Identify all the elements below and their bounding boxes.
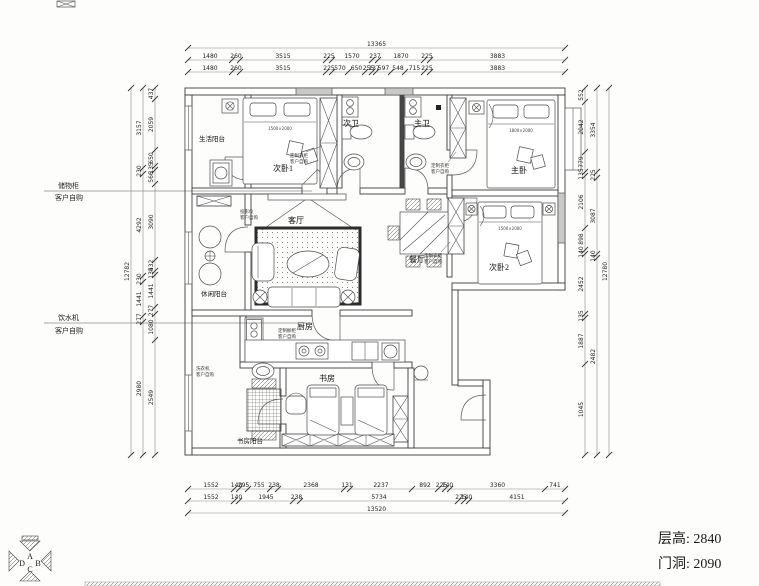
svg-text:230: 230 xyxy=(136,165,143,177)
dim-bottom-overall: 13520 xyxy=(185,506,568,516)
title-bar-edge xyxy=(85,582,660,586)
svg-text:1480: 1480 xyxy=(202,65,217,72)
round-chair-icon xyxy=(199,263,221,285)
svg-text:2237: 2237 xyxy=(373,482,388,489)
svg-text:1870: 1870 xyxy=(393,53,408,60)
svg-text:715: 715 xyxy=(409,65,421,72)
nightstand-icon xyxy=(222,99,238,113)
svg-text:3157: 3157 xyxy=(136,120,143,135)
svg-text:4151: 4151 xyxy=(509,494,524,501)
dim-left-inner: 4372059650135566309043213514412771080254… xyxy=(148,85,158,458)
chair-icon xyxy=(406,199,420,210)
room-label-study-balcony: 书房阳台 xyxy=(237,436,263,445)
dim-top-overall: 13365 xyxy=(185,41,568,51)
bed-icon-bedroom2 xyxy=(478,202,542,284)
svg-text:140: 140 xyxy=(590,250,597,262)
svg-text:1441: 1441 xyxy=(148,283,155,298)
svg-text:洗衣机: 洗衣机 xyxy=(196,365,210,372)
svg-text:客户自购: 客户自购 xyxy=(431,168,449,175)
svg-text:295: 295 xyxy=(238,482,250,489)
sofa-icon xyxy=(268,287,340,307)
door-kitchen xyxy=(312,313,340,341)
svg-text:741: 741 xyxy=(549,482,561,489)
svg-text:140: 140 xyxy=(578,246,585,258)
svg-text:2549: 2549 xyxy=(148,390,155,405)
svg-text:566: 566 xyxy=(148,171,155,183)
svg-text:140: 140 xyxy=(461,494,473,501)
stool-icon xyxy=(414,366,428,380)
round-chair-icon xyxy=(199,226,221,248)
callout-projector: 投影仪 客户自购 xyxy=(240,208,258,221)
table-icon xyxy=(247,389,281,431)
room-label-living: 客厅 xyxy=(288,215,304,225)
svg-text:12782: 12782 xyxy=(124,262,131,281)
callout-washer: 洗衣机 客户自购 xyxy=(196,365,214,378)
svg-text:1552: 1552 xyxy=(203,482,218,489)
nightstand-icon xyxy=(543,203,555,215)
floor-plan-drawing: 生活阳台 次卧1 次卫 主卫 主卧 餐厅 次卧2 客厅 休闲阳台 厨房 书房 书… xyxy=(0,0,759,586)
nightstand-icon xyxy=(469,101,484,114)
bed-size-master: 1800×2000 xyxy=(509,128,533,133)
room-label-bedroom2: 次卧2 xyxy=(489,262,509,272)
door-entry xyxy=(461,395,486,420)
window-top-2 xyxy=(385,88,413,95)
logo-letter-b: B xyxy=(35,559,40,568)
svg-text:225: 225 xyxy=(590,169,597,181)
sink-icon xyxy=(406,154,426,170)
svg-text:570: 570 xyxy=(334,65,346,72)
logo-triangle-top xyxy=(20,541,40,551)
room-label-master-bath: 主卫 xyxy=(414,118,430,128)
svg-text:3354: 3354 xyxy=(590,122,597,137)
dim-top-a: 14802603515225157023718702253883 xyxy=(185,53,568,63)
nightstand-icon xyxy=(466,203,477,215)
dim-left-outer: 3157230429223014412772980 xyxy=(136,85,146,458)
chair-icon xyxy=(427,199,441,210)
bed-size-bedroom2: 1500×2000 xyxy=(498,226,522,231)
room-label-living-balcony: 生活阳台 xyxy=(199,134,225,143)
svg-text:12780: 12780 xyxy=(602,262,609,281)
daybed-icon xyxy=(307,385,339,435)
window-right xyxy=(558,193,565,243)
svg-text:5734: 5734 xyxy=(371,494,386,501)
callout-kitchen-cabinet: 定制橱柜 客户自购 xyxy=(278,327,296,340)
floor-plan-sheet: 生活阳台 次卧1 次卫 主卫 主卧 餐厅 次卧2 客厅 休闲阳台 厨房 书房 书… xyxy=(0,0,759,586)
chair-icon xyxy=(252,379,276,388)
svg-text:135: 135 xyxy=(578,168,585,180)
svg-text:755: 755 xyxy=(253,482,265,489)
wardrobe-icon-masterbath xyxy=(450,98,466,158)
living-room-set xyxy=(252,194,360,307)
dim-right-overall: 12780 xyxy=(602,85,612,458)
svg-text:客户自购: 客户自购 xyxy=(278,333,296,340)
svg-text:3360: 3360 xyxy=(490,482,505,489)
storage-cabinet-icon xyxy=(197,196,231,206)
svg-text:3090: 3090 xyxy=(148,214,155,229)
svg-text:定制衣柜: 定制衣柜 xyxy=(431,162,449,169)
logo-letter-d: D xyxy=(19,559,25,568)
svg-text:1887: 1887 xyxy=(578,333,585,348)
sink-icon xyxy=(344,154,364,170)
svg-text:2980: 2980 xyxy=(136,381,143,396)
door-leisure-balcony xyxy=(225,227,248,252)
svg-text:140: 140 xyxy=(442,482,454,489)
dim-bottom-a: 1552140295755238236813122378922251403360… xyxy=(185,482,568,492)
svg-text:3515: 3515 xyxy=(275,65,290,72)
svg-text:3883: 3883 xyxy=(490,65,505,72)
svg-text:277: 277 xyxy=(148,305,155,317)
svg-text:260: 260 xyxy=(230,65,242,72)
svg-text:2106: 2106 xyxy=(578,194,585,209)
floor-height-note: 层高: 2840 xyxy=(658,530,721,547)
svg-text:135: 135 xyxy=(578,310,585,322)
room-label-master-bedroom: 主卧 xyxy=(511,165,527,175)
bed-size-bedroom1: 1500×2000 xyxy=(268,126,292,131)
svg-text:13520: 13520 xyxy=(367,506,386,513)
svg-text:225: 225 xyxy=(323,53,335,60)
logo-letter-a: A xyxy=(27,552,33,561)
window-seat-icon xyxy=(282,434,394,446)
bookcase-icon-study xyxy=(393,396,408,442)
room-label-leisure-balcony: 休闲阳台 xyxy=(201,289,227,298)
compass-logo: A B C D xyxy=(9,536,51,581)
window-top-1 xyxy=(296,88,332,95)
room-label-kitchen: 厨房 xyxy=(297,321,313,331)
room-label-dining: 餐厅 xyxy=(409,255,425,264)
title-notes: 层高: 2840 门洞: 2090 xyxy=(658,530,721,572)
logo-triangle-right xyxy=(41,551,51,571)
door-opening-note: 门洞: 2090 xyxy=(658,556,721,572)
basin-icon xyxy=(252,363,274,379)
svg-text:13365: 13365 xyxy=(367,41,386,48)
svg-text:779: 779 xyxy=(578,156,585,168)
svg-text:548: 548 xyxy=(392,65,404,72)
svg-text:2042: 2042 xyxy=(578,119,585,134)
svg-text:1045: 1045 xyxy=(578,402,585,417)
callout-water-line2: 客户自购 xyxy=(55,326,83,335)
svg-text:定制衣柜: 定制衣柜 xyxy=(290,152,308,159)
armchair-icon xyxy=(334,247,360,282)
svg-text:238: 238 xyxy=(268,482,280,489)
svg-text:1570: 1570 xyxy=(344,53,359,60)
tv-icon xyxy=(268,194,346,200)
svg-text:892: 892 xyxy=(419,482,431,489)
svg-text:3087: 3087 xyxy=(590,208,597,223)
logo-triangle-left xyxy=(9,551,19,571)
dim-left-overall: 12782 xyxy=(124,85,134,458)
svg-text:1080: 1080 xyxy=(148,319,155,334)
armchair-icon xyxy=(252,243,274,281)
svg-text:客户自购: 客户自购 xyxy=(196,371,214,378)
sheet-cut-mark-top xyxy=(57,1,75,7)
kitchen-set xyxy=(245,318,405,362)
svg-text:225: 225 xyxy=(421,65,433,72)
tv-sightlines xyxy=(262,200,356,230)
svg-text:597: 597 xyxy=(378,65,390,72)
second-bath-fixtures xyxy=(342,97,372,170)
svg-text:4292: 4292 xyxy=(136,217,143,232)
svg-text:3883: 3883 xyxy=(490,53,505,60)
svg-text:135: 135 xyxy=(148,267,155,279)
svg-text:230: 230 xyxy=(136,273,143,285)
door-master-bath xyxy=(405,168,428,191)
svg-text:650: 650 xyxy=(148,152,155,164)
svg-text:1552: 1552 xyxy=(203,494,218,501)
logo-letter-c: C xyxy=(27,565,32,574)
svg-text:2482: 2482 xyxy=(590,349,597,364)
svg-text:1945: 1945 xyxy=(258,494,273,501)
appliance-icon xyxy=(382,343,399,360)
svg-text:客户自购: 客户自购 xyxy=(240,214,258,221)
svg-text:3515: 3515 xyxy=(275,53,290,60)
room-label-bedroom1: 次卧1 xyxy=(273,163,293,173)
wardrobe-icon-bedroom2 xyxy=(448,198,464,254)
dim-top-b: 1480260351522557065025513759754871522538… xyxy=(185,65,568,75)
svg-text:898: 898 xyxy=(578,233,585,245)
room-label-second-bath: 次卫 xyxy=(343,118,359,128)
room-label-study: 书房 xyxy=(319,373,335,383)
side-table-icon xyxy=(341,397,353,425)
washing-machine-icon xyxy=(210,160,232,186)
svg-text:277: 277 xyxy=(136,313,143,325)
callout-water-line1: 饮水机 xyxy=(58,313,79,322)
svg-text:260: 260 xyxy=(230,53,242,60)
svg-text:650: 650 xyxy=(351,65,363,72)
study-balcony-set xyxy=(247,363,306,440)
svg-text:225: 225 xyxy=(323,65,335,72)
wardrobe-icon-bedroom1 xyxy=(320,98,337,188)
svg-text:140: 140 xyxy=(231,494,243,501)
svg-text:2452: 2452 xyxy=(578,276,585,291)
callout-storage-line1: 储物柜 xyxy=(58,181,79,190)
svg-text:237: 237 xyxy=(369,53,381,60)
leisure-balcony-set xyxy=(199,226,221,285)
chair-icon xyxy=(286,396,306,414)
svg-text:238: 238 xyxy=(291,494,303,501)
callout-storage-line2: 客户自购 xyxy=(55,193,83,202)
svg-text:客户自购: 客户自购 xyxy=(424,258,442,265)
daybed-icon xyxy=(355,385,387,435)
stove-icon xyxy=(296,343,328,359)
switch-dot xyxy=(436,105,441,110)
svg-text:1441: 1441 xyxy=(136,291,143,306)
chair-icon xyxy=(388,226,399,240)
svg-text:225: 225 xyxy=(421,53,433,60)
dim-right-outer: 335422530871402482 xyxy=(590,85,600,458)
svg-text:2368: 2368 xyxy=(303,482,318,489)
svg-text:552: 552 xyxy=(578,89,585,101)
svg-text:437: 437 xyxy=(148,88,155,100)
svg-text:131: 131 xyxy=(341,482,353,489)
svg-text:2059: 2059 xyxy=(148,117,155,132)
svg-text:客户自购: 客户自购 xyxy=(290,158,308,165)
svg-text:定制橱柜: 定制橱柜 xyxy=(278,327,296,334)
master-bath-fixtures xyxy=(405,97,441,170)
dim-bottom-b: 1552140194523857342251404151 xyxy=(185,494,568,504)
svg-text:1480: 1480 xyxy=(202,53,217,60)
svg-text:定制衣柜: 定制衣柜 xyxy=(424,252,442,259)
svg-text:投影仪: 投影仪 xyxy=(240,208,254,215)
